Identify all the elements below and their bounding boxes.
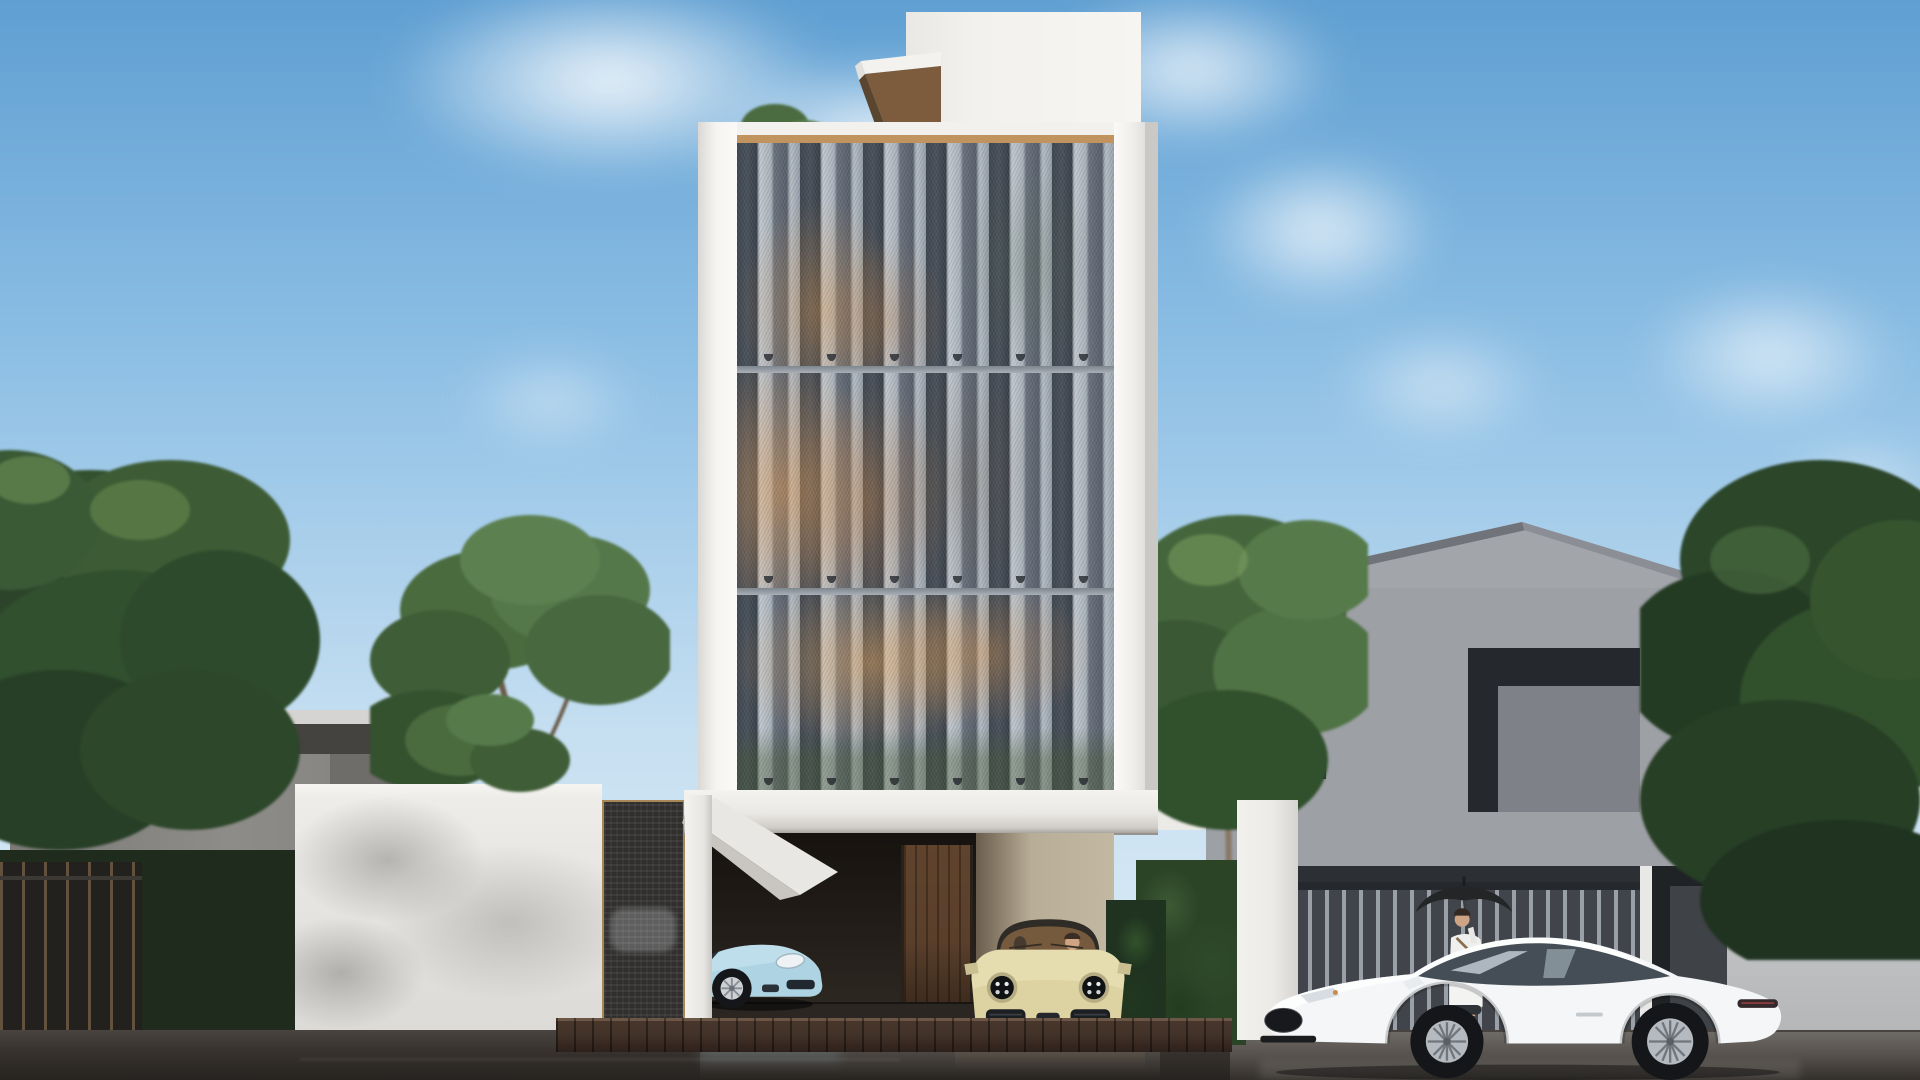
mesh-texture (737, 595, 1114, 790)
tower-pier-right (1114, 122, 1145, 833)
left-fence (0, 862, 142, 1042)
tower-right-return (1145, 122, 1158, 833)
floor-divider (737, 588, 1114, 595)
mesh-texture (737, 373, 1114, 588)
cloud (420, 330, 680, 470)
tower-pier-left (698, 122, 737, 833)
mesh-texture (737, 143, 1114, 366)
floor-divider (737, 366, 1114, 373)
left-white-wall (295, 784, 602, 1036)
facade-top-trim (737, 135, 1114, 143)
facade-band-1 (737, 143, 1114, 366)
left-fence-rail (0, 876, 142, 880)
curb-brick-edge (556, 1018, 1232, 1052)
right-house-recess-large (1468, 648, 1640, 812)
reflection-streak (300, 1058, 900, 1061)
parapet (698, 122, 1145, 135)
car-silhouette-through-gate (610, 908, 676, 952)
cloud (1290, 300, 1590, 470)
recess-inner-panel (1498, 686, 1640, 812)
car-blue-porsche (696, 925, 828, 1012)
white-post (685, 795, 712, 1036)
leaves-over-wall (400, 690, 580, 820)
render-stage (0, 0, 1920, 1080)
roof-box (906, 12, 1141, 124)
car-white-jaguar (1252, 928, 1792, 1080)
tree-far-right (1640, 440, 1920, 960)
left-fence-bars (0, 862, 142, 1042)
facade-band-3 (737, 595, 1114, 790)
left-mesh-gate (602, 800, 685, 1036)
facade-band-2 (737, 373, 1114, 588)
